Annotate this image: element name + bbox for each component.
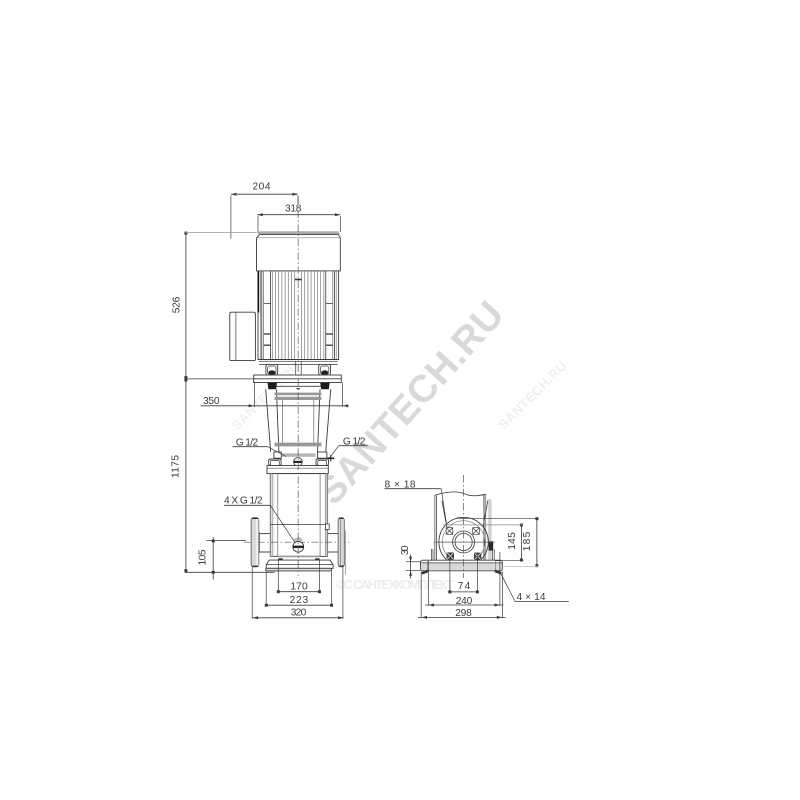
svg-text:4 X G 1/2: 4 X G 1/2 (224, 495, 263, 506)
svg-text:526: 526 (172, 296, 183, 313)
svg-text:185: 185 (522, 531, 533, 551)
svg-text:G 1/2: G 1/2 (236, 437, 259, 448)
svg-text:320: 320 (291, 608, 307, 619)
svg-text:318: 318 (285, 203, 302, 214)
svg-text:145: 145 (507, 532, 518, 550)
svg-text:©С САНТЕХКОМПЛЕКТ: ©С САНТЕХКОМПЛЕКТ (336, 578, 454, 592)
svg-text:105: 105 (198, 549, 209, 565)
svg-text:298: 298 (455, 608, 472, 619)
svg-text:204: 204 (253, 182, 271, 193)
svg-text:8 × 18: 8 × 18 (385, 479, 416, 490)
svg-text:4 × 14: 4 × 14 (517, 592, 546, 603)
svg-text:223: 223 (290, 595, 309, 606)
svg-text:240: 240 (456, 596, 473, 607)
svg-text:170: 170 (290, 581, 308, 592)
svg-text:74: 74 (458, 581, 471, 592)
svg-text:G 1/2: G 1/2 (343, 436, 366, 447)
svg-text:30: 30 (400, 545, 411, 555)
svg-text:350: 350 (203, 396, 220, 407)
svg-text:1175: 1175 (171, 455, 182, 478)
